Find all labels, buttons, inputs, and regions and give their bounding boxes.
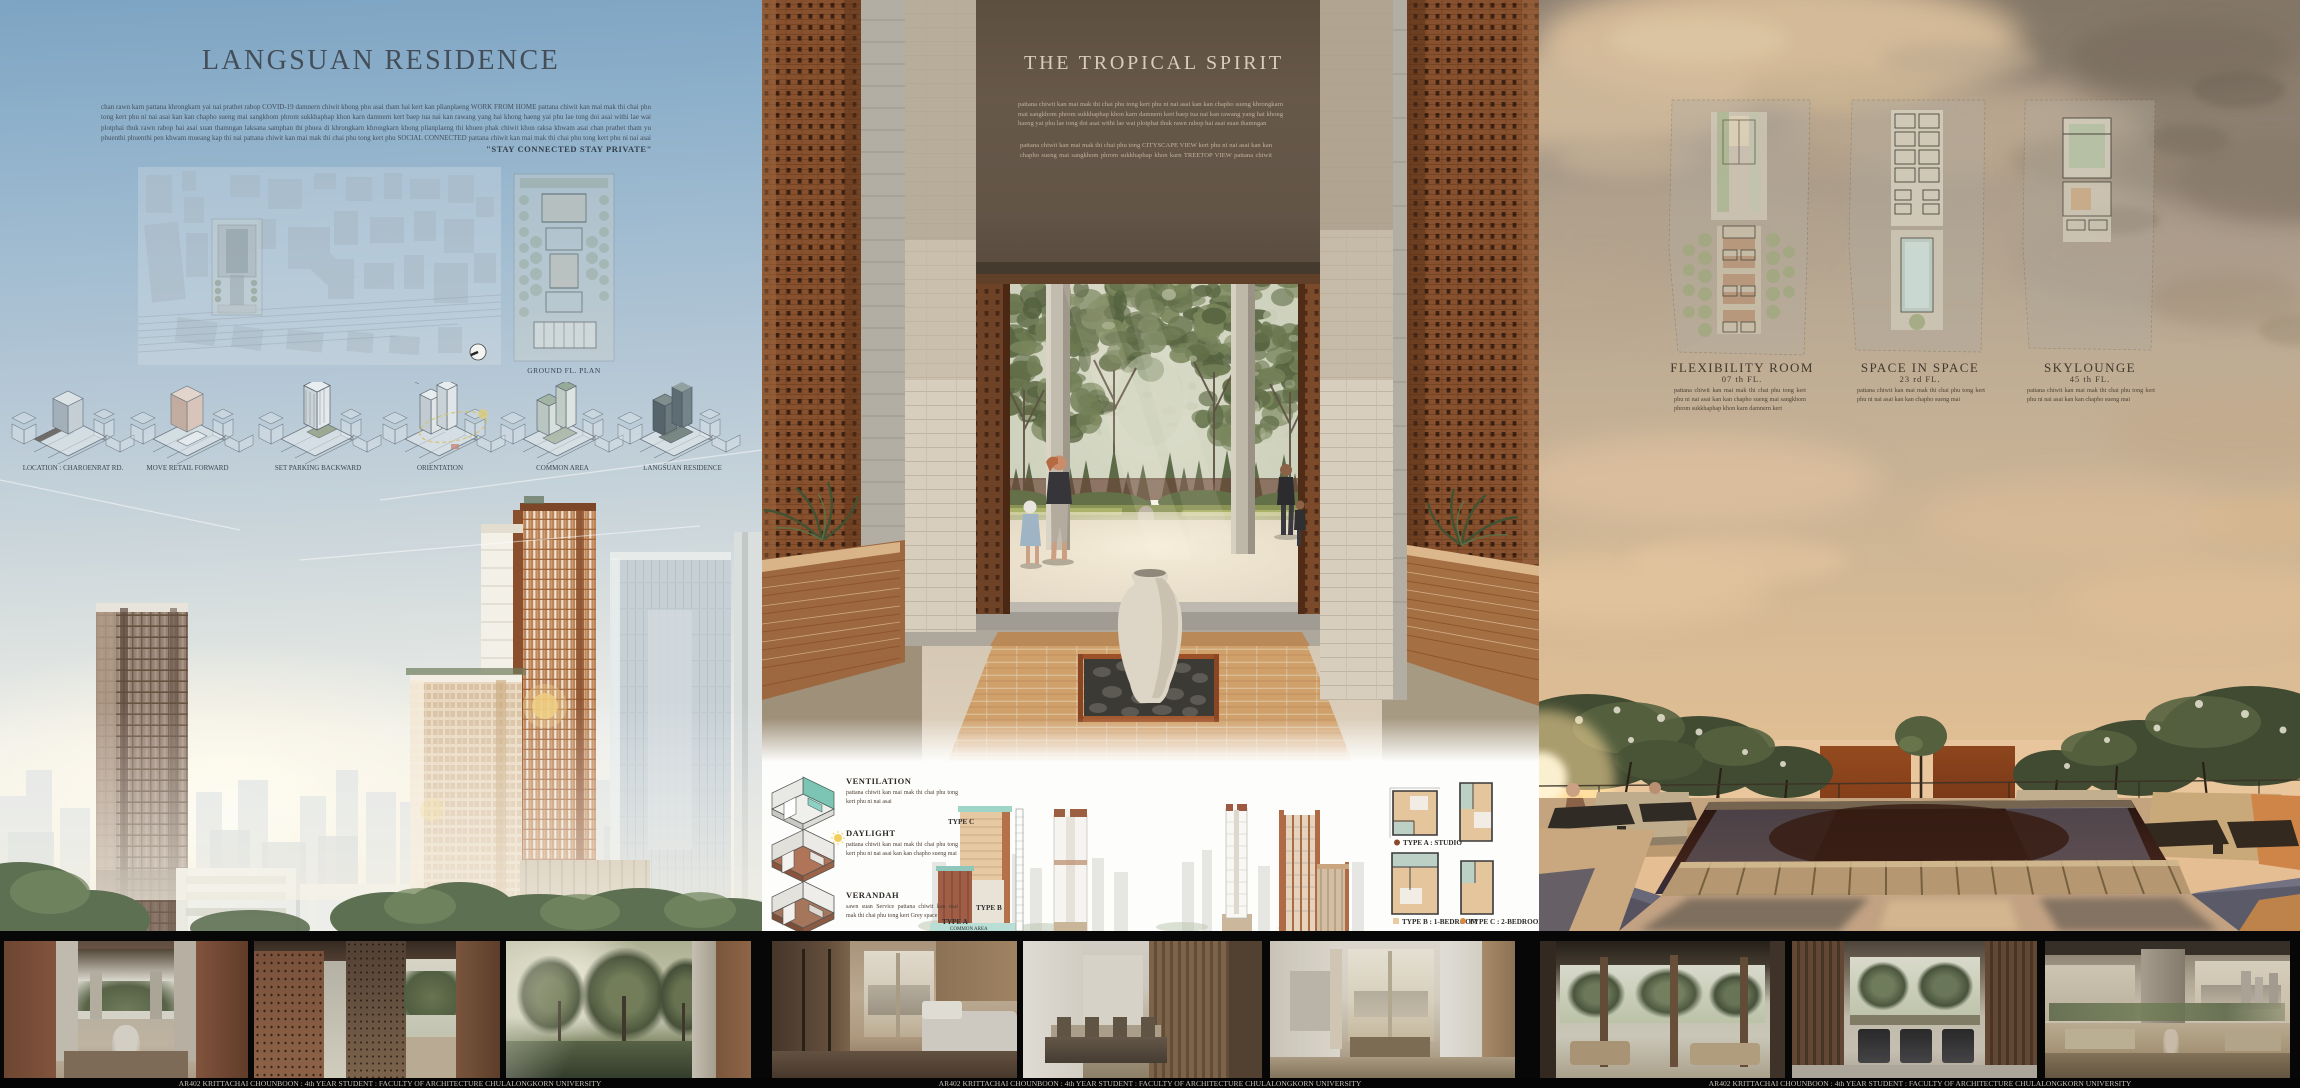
svg-text:TYPE B : 1-BEDROOM: TYPE B : 1-BEDROOM bbox=[1402, 918, 1478, 926]
svg-text:TYPE C: TYPE C bbox=[948, 818, 974, 826]
svg-text:TYPE B: TYPE B bbox=[976, 904, 1002, 912]
svg-text:TYPE A : STUDIO: TYPE A : STUDIO bbox=[1403, 839, 1462, 847]
svg-text:TYPE C : 2-BEDROOM: TYPE C : 2-BEDROOM bbox=[1469, 918, 1539, 926]
